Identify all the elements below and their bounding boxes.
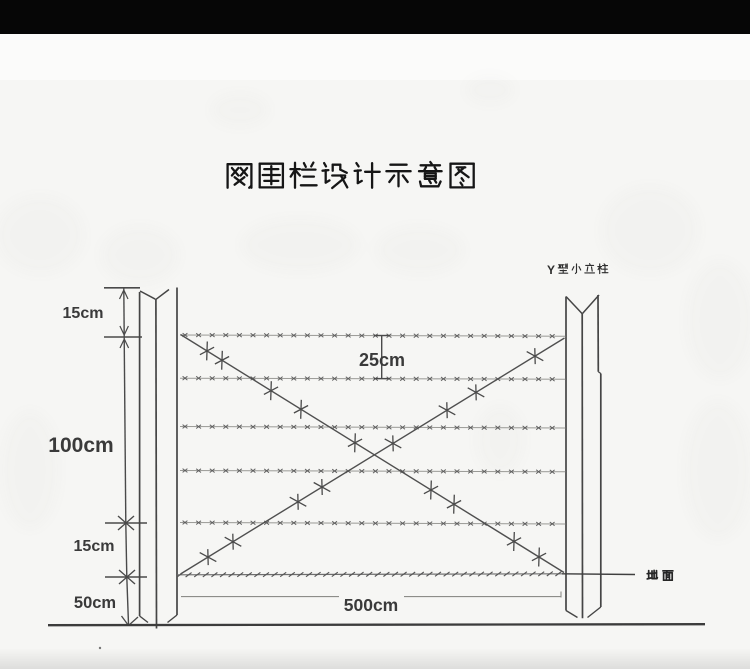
- svg-text:50cm: 50cm: [74, 594, 116, 612]
- svg-text:15cm: 15cm: [74, 538, 115, 555]
- svg-text:15cm: 15cm: [63, 305, 104, 322]
- svg-text:25cm: 25cm: [359, 350, 405, 370]
- svg-text:100cm: 100cm: [48, 434, 113, 457]
- svg-text:500cm: 500cm: [344, 595, 399, 615]
- svg-text:Y: Y: [547, 263, 555, 277]
